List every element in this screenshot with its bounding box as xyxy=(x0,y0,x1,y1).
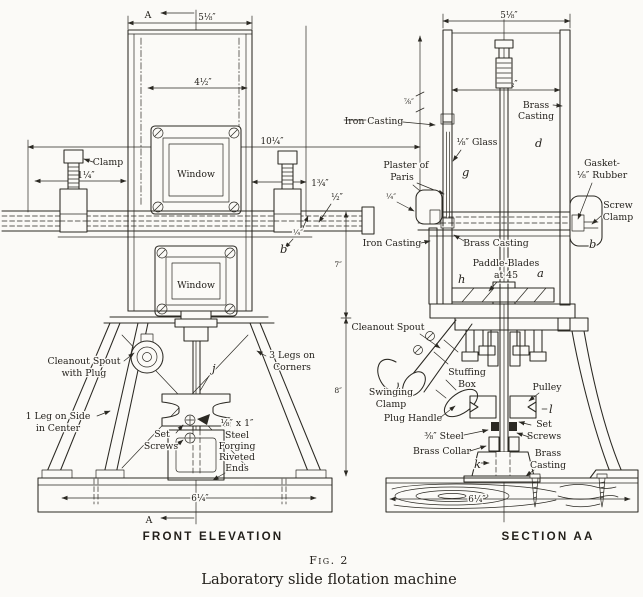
forging-label-5: Ends xyxy=(225,463,249,474)
sec-dim-top-width: 5⅛″ xyxy=(443,11,570,28)
front-elevation-view: A 5⅛″ 4½″ 10¼″ xyxy=(2,10,420,543)
sec-dim-base: 6¼″ xyxy=(468,494,486,505)
front-label-legs3: 3 Legs on Corners xyxy=(257,350,315,373)
leg1-label-1: 1 Leg on Side xyxy=(26,411,91,422)
window-upper-label: Window xyxy=(177,169,215,180)
part-letter-h: h xyxy=(458,272,465,286)
forging-label-2: Steel xyxy=(225,430,249,441)
paddle-label-2: at 45 xyxy=(494,270,518,281)
forging-label-3: Forging xyxy=(219,441,256,452)
sec-label-swinging-clamp: Swinging Clamp xyxy=(369,387,413,410)
sec-cleanout-label: Cleanout Spout xyxy=(351,322,424,333)
section-marker-top-label: A xyxy=(144,10,152,21)
steel-label: ⅜″ Steel xyxy=(424,431,464,442)
figure-number: Fig. 2 xyxy=(309,554,349,567)
paddle-label-1: Paddle-Blades xyxy=(473,258,540,269)
part-letter-d: d xyxy=(535,136,542,150)
sec-label-glass: ⅛″ Glass xyxy=(453,137,498,161)
sec-dim-left-height-label: ⅞″ xyxy=(404,97,414,106)
plug-handle-label: Plug Handle xyxy=(384,413,443,424)
section-marker-bottom-label: A xyxy=(145,515,153,526)
front-cleanout-spout: Cleanout Spout with Plug xyxy=(47,334,163,379)
sec-label-set-screws: Set Screws xyxy=(517,419,561,442)
plaster-label-2: Paris xyxy=(390,172,414,183)
sec-label-iron-casting-top: Iron Casting xyxy=(344,116,435,127)
sec-label-brass-casting-mid: Brass Casting xyxy=(454,235,529,249)
dim-lower-height: 8″ xyxy=(334,386,342,395)
sec-dim-quarter-label: ¼″ xyxy=(386,192,396,201)
screw-clamp-label-2: Clamp xyxy=(603,212,633,223)
sec-label-stuffing-box: Stuffing Box xyxy=(448,367,486,390)
section-marker-top: A xyxy=(144,10,194,21)
mid-vertical-dims: 7″ 8″ xyxy=(334,212,351,476)
leg1-label-2: in Center xyxy=(36,423,81,434)
section-marker-bottom: A xyxy=(145,515,194,526)
sec-label-iron-casting-mid: Iron Casting xyxy=(363,238,430,249)
brass-casting-bot-2: Casting xyxy=(530,460,566,471)
set-screws-label-2: Screws xyxy=(144,441,178,452)
sec-label-brass-casting-top: Brass Casting xyxy=(518,100,562,122)
set-screws-label-1: Set xyxy=(154,429,170,440)
front-part-j: j xyxy=(200,361,216,391)
front-clamp-left xyxy=(60,150,87,232)
dim-overall-width: 10¼″ xyxy=(260,136,284,147)
brass-casting-mid-label: Brass Casting xyxy=(463,238,528,249)
sec-dim-quarter: ¼″ xyxy=(386,192,414,211)
cleanout-label-2: with Plug xyxy=(62,368,107,379)
screw-clamp-label-1: Screw xyxy=(603,200,633,211)
front-label-leg1: 1 Leg on Side in Center xyxy=(26,411,110,434)
swinging-clamp-label-2: Clamp xyxy=(376,399,406,410)
forging-label-4: Riveted xyxy=(219,452,255,463)
dim-inner-width: 4½″ xyxy=(194,77,212,88)
dim-upper-height: 7″ xyxy=(334,260,342,269)
dim-quarter-inch: ¼″ xyxy=(293,228,303,237)
part-letter-g: g xyxy=(462,165,469,179)
legs3-label-2: Corners xyxy=(273,362,311,373)
front-set-screw-2 xyxy=(185,433,195,443)
glass-label: ⅛″ Glass xyxy=(457,137,498,148)
part-letter-b-section: b xyxy=(589,237,596,251)
flotation-machine-drawing: A 5⅛″ 4½″ 10¼″ xyxy=(0,0,643,597)
sec-label-brass-collar: Brass Collar xyxy=(413,446,486,457)
swinging-clamp-hook xyxy=(378,359,399,390)
section-aa-view: 5⅛″ 4½″ ⅞″ xyxy=(344,11,638,543)
cleanout-label-1: Cleanout Spout xyxy=(47,356,120,367)
iron-casting-top-label: Iron Casting xyxy=(345,116,404,127)
front-dim-clamp-offset: 1¼″ xyxy=(35,170,126,181)
figure-page: A 5⅛″ 4½″ 10¼″ xyxy=(0,0,643,597)
sec-dim-top-width-label: 5⅛″ xyxy=(500,11,518,21)
part-letter-k: k xyxy=(474,457,481,471)
dim-top-width: 5⅛″ xyxy=(198,13,216,23)
front-window-upper: Window xyxy=(151,126,241,214)
swinging-clamp-label-1: Swinging xyxy=(369,387,413,398)
front-elevation-title: FRONT ELEVATION xyxy=(143,530,284,543)
plaster-label-1: Plaster of xyxy=(383,160,429,171)
dim-right-offset: 1¾″ xyxy=(311,178,329,189)
brass-casting-top-2: Casting xyxy=(518,111,554,122)
iron-casting-mid-label: Iron Casting xyxy=(363,238,422,249)
figure-title: Laboratory slide flotation machine xyxy=(201,571,456,588)
figure-caption: Fig. 2 Laboratory slide flotation machin… xyxy=(201,554,456,588)
front-clamp-right xyxy=(274,151,301,232)
brass-casting-top-1: Brass xyxy=(523,100,550,111)
stuffing-box-label-1: Stuffing xyxy=(448,367,486,378)
brass-casting-bot-1: Brass xyxy=(535,448,562,459)
gasket-label-1: Gasket- xyxy=(584,158,620,169)
sec-label-brass-casting-bottom: Brass Casting xyxy=(526,448,566,476)
front-dim-base: 6¼″ xyxy=(191,493,209,504)
sec-base-screw-right xyxy=(597,474,607,507)
forging-label-1: ⅛″ x 1″ xyxy=(220,418,254,429)
dim-half-inch: ½″ xyxy=(331,192,344,203)
sec-set-screws-2: Screws xyxy=(527,431,561,442)
legs3-label-1: 3 Legs on xyxy=(269,350,315,361)
part-letter-l: l xyxy=(549,402,553,416)
front-window-lower: Window xyxy=(155,246,237,316)
section-aa-title: SECTION AA xyxy=(501,530,594,543)
front-set-screw-1 xyxy=(185,415,195,425)
front-base: 6¼″ xyxy=(38,478,332,512)
part-letter-b-front: b xyxy=(280,242,287,256)
front-label-clamp: Clamp xyxy=(84,157,123,168)
pulley-label: Pulley xyxy=(533,382,563,393)
sec-label-steel: ⅜″ Steel xyxy=(424,430,488,442)
clamp-label: Clamp xyxy=(93,157,123,168)
brass-collar-label: Brass Collar xyxy=(413,446,472,457)
front-dim-half: ½″ xyxy=(319,192,344,222)
sec-leg xyxy=(558,318,638,478)
sec-set-screws-1: Set xyxy=(536,419,552,430)
part-letter-j: j xyxy=(209,361,216,375)
stuffing-box-label-2: Box xyxy=(458,379,476,390)
window-lower-label: Window xyxy=(177,280,215,291)
part-letter-a: a xyxy=(537,266,544,280)
sec-part-k: k xyxy=(474,457,489,471)
dim-clamp-offset: 1¼″ xyxy=(77,170,95,181)
gasket-label-2: ⅛″ Rubber xyxy=(577,170,628,181)
